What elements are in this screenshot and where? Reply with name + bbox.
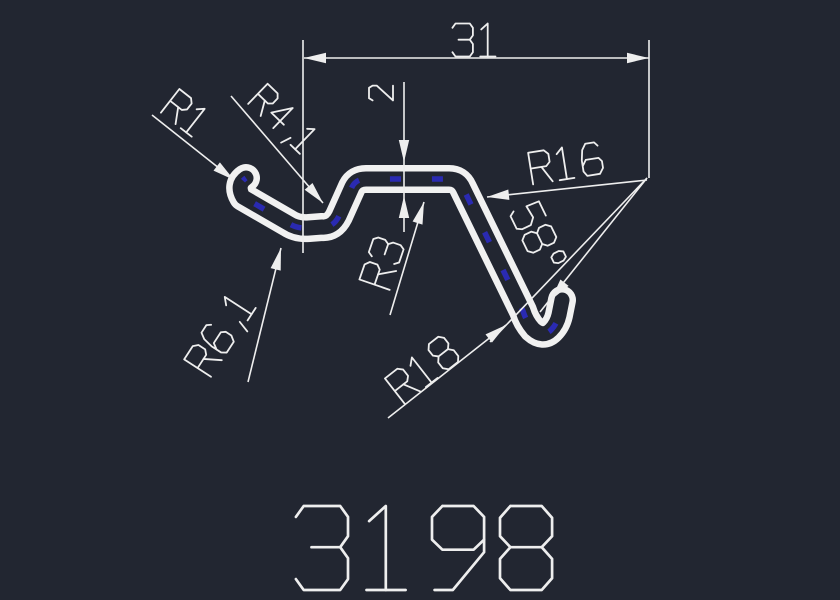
leader-r16 [487, 180, 647, 197]
arrowheads [214, 53, 650, 343]
stick-glyph-stroke [359, 261, 396, 290]
dim-label-r1 [161, 89, 210, 137]
stick-glyph-stroke [550, 249, 567, 264]
stick-glyph-stroke [378, 266, 396, 280]
drawing-svg [0, 0, 840, 600]
arrowhead [214, 162, 235, 180]
stick-glyph-stroke [161, 89, 194, 124]
dim-label-r16 [528, 142, 604, 185]
cad-viewport[interactable] [0, 0, 840, 600]
stick-glyph-stroke [541, 166, 552, 183]
stick-glyph-stroke [238, 322, 250, 332]
dimension-lines [152, 40, 649, 418]
stick-glyph-stroke [198, 321, 236, 355]
stick-glyph-stroke [432, 506, 484, 550]
stick-glyph-stroke [296, 547, 348, 590]
dim-label-r6-1 [184, 290, 260, 379]
stick-glyph-stroke [369, 86, 393, 101]
arrowhead [399, 196, 409, 218]
arrowhead [486, 325, 507, 343]
dim-label-thickness [369, 86, 393, 101]
arrowhead [304, 53, 326, 63]
dim-label-angle [509, 200, 567, 273]
stick-glyph-stroke [500, 547, 552, 590]
stick-glyph-stroke [407, 357, 432, 386]
stick-glyph-stroke [426, 378, 438, 387]
stick-glyph-stroke [481, 24, 488, 57]
arrowhead [627, 53, 649, 63]
stick-glyph-stroke [383, 241, 405, 265]
stick-glyph-stroke [385, 366, 420, 403]
stick-glyph-stroke [452, 24, 473, 40]
part-number [296, 506, 552, 590]
stick-glyph-stroke [181, 128, 192, 137]
stick-glyph-stroke [452, 40, 473, 57]
arrowhead [399, 140, 409, 162]
stick-glyph-stroke [248, 308, 256, 320]
stick-glyph-stroke [281, 135, 290, 145]
dim-label-r4-1 [245, 84, 320, 158]
stick-glyph-stroke [368, 236, 389, 260]
dim-label-r18 [385, 334, 461, 403]
stick-glyph-stroke [528, 150, 553, 185]
dim-label-r3 [359, 236, 404, 290]
dim-label-width [452, 24, 495, 57]
stick-glyph-stroke [500, 506, 552, 547]
dimension-labels [161, 24, 604, 591]
stick-glyph-stroke [579, 142, 604, 177]
arrowhead [487, 190, 509, 200]
stick-glyph-stroke [556, 147, 567, 180]
stick-glyph-stroke [435, 347, 461, 372]
stick-glyph-stroke [369, 506, 386, 590]
stick-glyph-stroke [296, 506, 348, 547]
stick-glyph-stroke [535, 223, 558, 248]
arrowhead [271, 248, 281, 271]
arrowhead [413, 202, 424, 225]
stick-glyph-stroke [221, 297, 251, 320]
stick-glyph-stroke [426, 334, 451, 359]
stick-glyph-stroke [560, 178, 575, 180]
